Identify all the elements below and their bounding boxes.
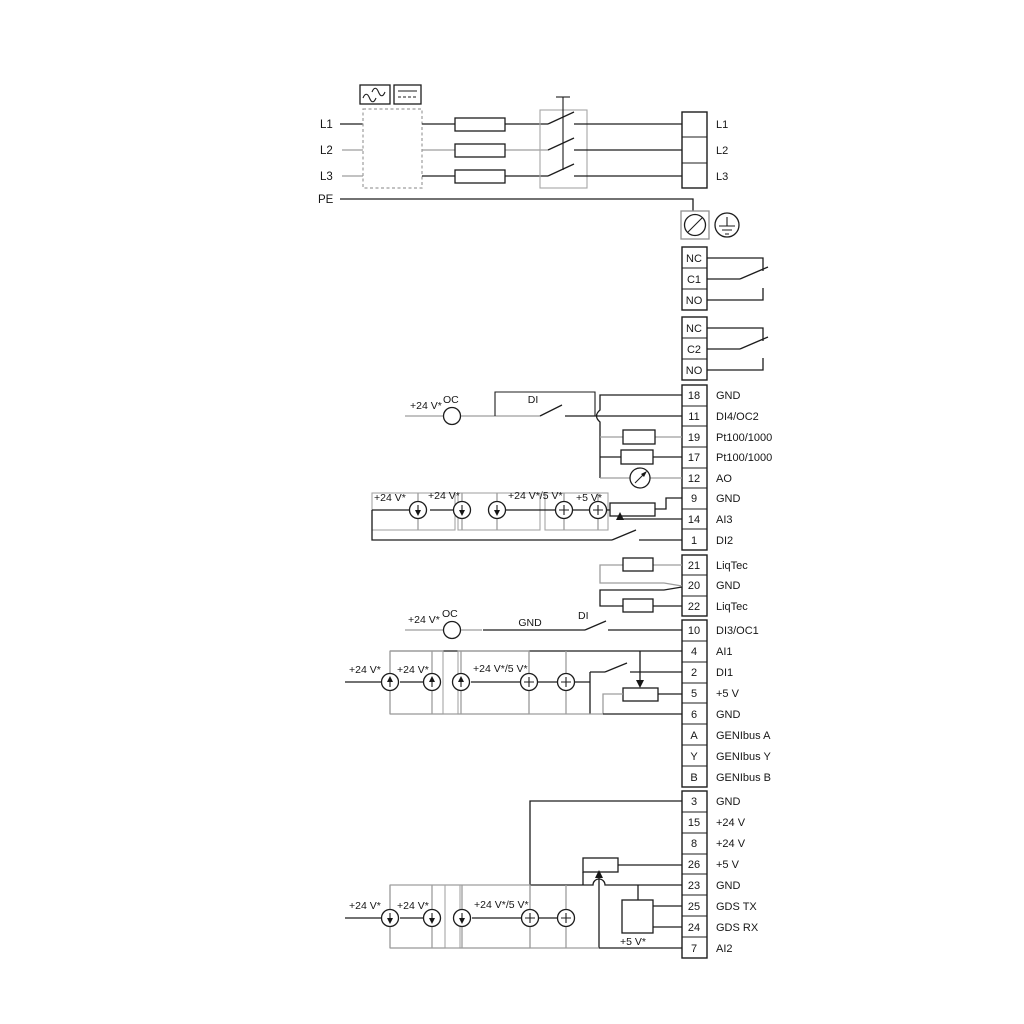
voltage-source-icon — [558, 674, 575, 691]
terminal-label: L1 — [716, 119, 728, 131]
v24-label: +24 V* — [408, 614, 440, 626]
terminal-number: 11 — [688, 411, 699, 423]
fuse-l1-symbol — [455, 118, 505, 131]
resistor-symbol — [623, 599, 653, 612]
terminal-number: 22 — [688, 601, 700, 613]
v24-v5-label: +24 V*/5 V* — [473, 663, 528, 675]
terminal-number: 1 — [691, 535, 697, 547]
oc-open-collector-icon — [444, 622, 461, 639]
terminal-number: 6 — [691, 709, 697, 721]
terminal-label: GND — [716, 796, 741, 808]
relay1-block: NC C1 NO — [682, 247, 768, 310]
terminal-label: GDS RX — [716, 922, 759, 934]
resistor-symbol — [623, 430, 655, 444]
current-source-icon — [454, 502, 471, 519]
v24-label: +24 V* — [397, 664, 429, 676]
liqtec-block: 21 20 22 LiqTec GND LiqTec — [600, 555, 748, 616]
terminal-label: GENIbus B — [716, 772, 771, 784]
oc-open-collector-icon — [444, 408, 461, 425]
relay1-nc: NC — [686, 253, 702, 265]
terminal-number: 17 — [688, 452, 700, 464]
ai1-source-circuit: +24 V* +24 V* +24 V*/5 V* — [345, 651, 682, 714]
current-source-icon — [453, 674, 470, 691]
terminal-label: LiqTec — [716, 560, 748, 572]
pt100-sensor-2 — [600, 450, 682, 464]
dc-symbol-icon — [394, 85, 421, 104]
mains-l2-label: L2 — [320, 145, 333, 157]
terminal-number: 4 — [691, 646, 697, 658]
terminal-label: Pt100/1000 — [716, 432, 772, 444]
wire-pe — [340, 199, 693, 211]
fuse-l2-symbol — [455, 144, 505, 157]
ao-meter-icon — [600, 468, 682, 488]
terminal-label: DI4/OC2 — [716, 411, 759, 423]
terminal-number: 24 — [688, 922, 700, 934]
v24-label: +24 V* — [349, 664, 381, 676]
terminal-number: 18 — [688, 390, 700, 402]
relay2-c2: C2 — [687, 344, 701, 356]
v24-v5-label: +24 V*/5 V* — [474, 899, 529, 911]
terminal-number: 15 — [688, 817, 700, 829]
current-source-icon — [489, 502, 506, 519]
terminal-number: 5 — [691, 688, 697, 700]
mains-pe-label: PE — [318, 194, 334, 206]
terminal-label: AI2 — [716, 943, 733, 955]
ai3-source-circuit: +24 V* +24 V* +24 V*/5 V* +5 V* — [372, 490, 682, 540]
relay2-nc: NC — [686, 323, 702, 335]
terminal-label: GENIbus Y — [716, 751, 771, 763]
pe-terminal-icon — [681, 211, 709, 239]
terminal-number: 20 — [688, 580, 700, 592]
v24-label: +24 V* — [397, 900, 429, 912]
wiring-diagram: L1 L2 L3 PE — [0, 0, 1024, 1024]
terminal-label: GND — [716, 390, 741, 402]
io-block-1: 18 11 19 17 12 9 14 1 GND DI4/OC2 Pt100/… — [372, 385, 772, 550]
terminal-number: 19 — [688, 432, 700, 444]
current-source-icon — [454, 910, 471, 927]
terminal-number: 21 — [688, 560, 700, 572]
di-switch-symbol — [540, 405, 562, 416]
potentiometer-symbol — [610, 498, 682, 520]
mains-section: L1 L2 L3 PE — [318, 85, 739, 239]
terminal-number: 26 — [688, 859, 700, 871]
mains-l3-label: L3 — [320, 171, 333, 183]
resistor-symbol — [621, 450, 653, 464]
terminal-number: 25 — [688, 901, 700, 913]
terminal-number: 3 — [691, 796, 697, 808]
potentiometer-symbol — [603, 651, 682, 714]
terminal-label: +5 V — [716, 688, 740, 700]
gnd-label: GND — [518, 617, 542, 629]
fuse-l3-symbol — [455, 170, 505, 183]
terminal-label: AO — [716, 473, 732, 485]
current-source-icon — [382, 674, 399, 691]
terminal-label: L2 — [716, 145, 728, 157]
terminal-label: AI3 — [716, 514, 733, 526]
ac-symbol-icon — [360, 85, 390, 104]
oc-label: OC — [442, 608, 458, 620]
oc-label: OC — [443, 394, 459, 406]
relay1-no: NO — [686, 295, 703, 307]
terminal-number: Y — [690, 751, 698, 763]
current-source-icon — [424, 674, 441, 691]
liqtec-sensor-upper — [600, 558, 682, 586]
gds-module-box: +5 V* — [620, 885, 682, 948]
di-label: DI — [578, 610, 589, 622]
terminal-number: 9 — [691, 493, 697, 505]
current-source-icon — [410, 502, 427, 519]
terminal-number: 23 — [688, 880, 700, 892]
di-box — [495, 392, 595, 416]
v24-v5-label: +24 V*/5 V* — [508, 490, 563, 502]
terminal-number: 14 — [688, 514, 700, 526]
voltage-source-icon — [556, 502, 573, 519]
terminal-label: Pt100/1000 — [716, 452, 772, 464]
di1-switch-symbol — [605, 663, 627, 672]
relay1-c1: C1 — [687, 274, 701, 286]
converter-box — [363, 109, 422, 188]
di-switch-symbol — [585, 621, 606, 630]
relay1-contact-symbol — [707, 258, 768, 300]
terminal-label: DI3/OC1 — [716, 625, 759, 637]
terminal-label: GND — [716, 493, 741, 505]
v24-label: +24 V* — [428, 490, 460, 502]
terminal-number: 12 — [688, 473, 700, 485]
resistor-symbol — [623, 558, 653, 571]
wire-gnd-rail — [530, 879, 682, 885]
wiring-diagram-page: L1 L2 L3 PE — [0, 0, 1024, 1024]
voltage-source-icon — [590, 502, 607, 519]
ground-icon — [715, 213, 739, 237]
relay2-block: NC C2 NO — [682, 317, 768, 380]
di-label: DI — [528, 394, 539, 406]
terminal-label: DI1 — [716, 667, 733, 679]
terminal-number: 2 — [691, 667, 697, 679]
di4-oc2-circuit: +24 V* OC DI — [405, 392, 682, 425]
io-block-2: 10 4 2 5 6 A Y B DI3/OC1 AI1 DI1 +5 V GN… — [345, 608, 771, 787]
mains-l1-label: L1 — [320, 119, 333, 131]
terminal-label: GDS TX — [716, 901, 757, 913]
terminal-label: GND — [716, 880, 741, 892]
v5-label: +5 V* — [620, 936, 646, 948]
terminal-label: GND — [716, 709, 741, 721]
v24-label: +24 V* — [410, 400, 442, 412]
v24-label: +24 V* — [349, 900, 381, 912]
terminal-label: +24 V — [716, 838, 746, 850]
io-block-3: 3 15 8 26 23 25 24 7 GND +24 V +24 V +5 … — [345, 791, 759, 958]
terminal-label: +5 V — [716, 859, 740, 871]
v24-label: +24 V* — [374, 492, 406, 504]
pt100-sensor-1 — [600, 430, 682, 444]
terminal-label: LiqTec — [716, 601, 748, 613]
terminal-number: 8 — [691, 838, 697, 850]
terminal-label: L3 — [716, 171, 728, 183]
relay2-contact-symbol — [707, 328, 768, 370]
liqtec-sensor-lower — [600, 587, 682, 612]
terminal-label: DI2 — [716, 535, 733, 547]
relay2-no: NO — [686, 365, 703, 377]
terminal-number: A — [690, 730, 698, 742]
terminal-label: GENIbus A — [716, 730, 771, 742]
terminal-number: B — [690, 772, 697, 784]
current-source-icon — [382, 910, 399, 927]
terminal-label: AI1 — [716, 646, 733, 658]
terminal-label: GND — [716, 580, 741, 592]
voltage-source-icon — [558, 910, 575, 927]
voltage-source-icon — [522, 910, 539, 927]
voltage-source-icon — [521, 674, 538, 691]
terminal-number: 10 — [688, 625, 700, 637]
terminal-number: 7 — [691, 943, 697, 955]
di2-switch-symbol — [612, 530, 636, 540]
terminal-label: +24 V — [716, 817, 746, 829]
mains-terminal-block: L1 L2 L3 — [682, 112, 728, 188]
main-switch-symbol — [540, 97, 587, 188]
current-source-icon — [424, 910, 441, 927]
